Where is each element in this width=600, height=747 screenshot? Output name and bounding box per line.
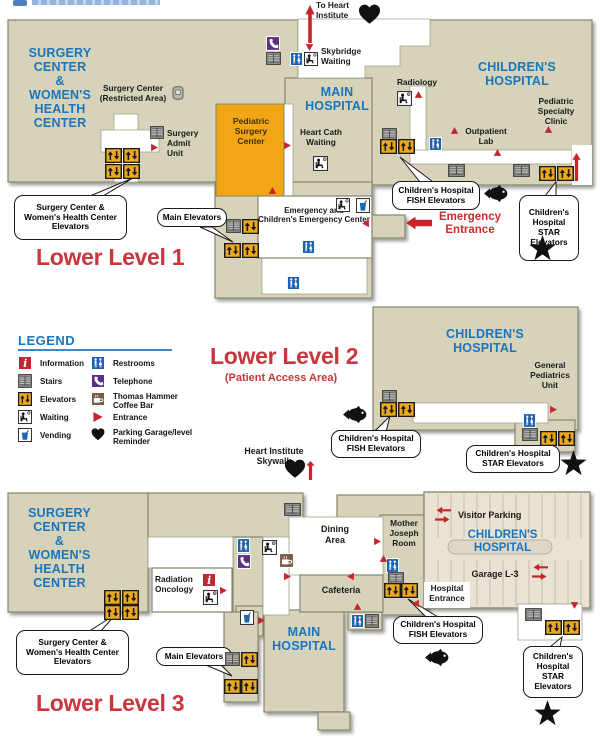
- entrance-icon: [373, 537, 382, 546]
- garage-l3-label: Garage L-3: [464, 569, 526, 580]
- elevator-icon: [380, 139, 397, 154]
- elevator-icon: [224, 243, 241, 258]
- waiting-icon: [18, 410, 32, 424]
- level2-title: Lower Level 2: [210, 343, 358, 370]
- level3-title: Lower Level 3: [36, 690, 184, 717]
- information-icon: i: [18, 356, 32, 370]
- entrance-icon: [411, 599, 420, 608]
- hospital-map-page: To Heart Institute SURGERY CENTER & WOME…: [0, 0, 600, 747]
- elevator-icon: [18, 392, 32, 406]
- heart-cath-waiting-label: Heart Cath Waiting: [289, 128, 353, 148]
- heart-icon: [91, 428, 105, 441]
- stairs-icon: [18, 374, 32, 388]
- elevator-icon: [105, 148, 122, 163]
- outpatient-lab-label: Outpatient Lab: [457, 127, 515, 147]
- stairs-icon: [226, 219, 241, 233]
- waiting-icon: [336, 198, 350, 212]
- restricted-area-icon: [172, 86, 184, 100]
- legend-rule: [18, 349, 172, 351]
- star-icon: [534, 700, 561, 726]
- information-icon: i: [202, 573, 216, 587]
- entrance-icon: [549, 405, 558, 414]
- entrance-icon: [450, 126, 459, 135]
- entrance-icon: [305, 43, 314, 52]
- heart-icon: [358, 4, 381, 25]
- waiting-icon: [397, 91, 412, 106]
- elevator-icon: [384, 583, 401, 598]
- left-arrow-icon: [406, 216, 432, 230]
- waiting-icon: [262, 540, 277, 555]
- heart-icon: [284, 459, 306, 479]
- restrooms-icon: [290, 52, 303, 66]
- elevator-icon: [540, 431, 557, 446]
- elevator-icon: [123, 148, 140, 163]
- elevator-icon: [242, 219, 259, 234]
- entrance-icon: [283, 141, 292, 150]
- entrance-icon: [379, 554, 388, 563]
- stairs-icon: [225, 652, 240, 666]
- elevator-icon: [545, 620, 562, 635]
- restrooms-icon: [523, 413, 536, 428]
- legend-item-label: Restrooms: [113, 359, 197, 368]
- elevator-icon: [398, 139, 415, 154]
- emergency-center-label: Emergency and Children's Emergency Cente…: [258, 206, 370, 225]
- svg-text:i: i: [207, 574, 211, 587]
- entrance-icon: [283, 572, 292, 581]
- vending-icon: [18, 428, 32, 442]
- vending-icon: [240, 610, 254, 625]
- stairs-icon: [150, 126, 164, 139]
- waiting-icon: [304, 52, 318, 66]
- coffee-icon: [91, 392, 105, 406]
- pediatric-surgery-label: Pediatric Surgery Center: [219, 116, 283, 146]
- legend-item-label: Stairs: [40, 377, 92, 386]
- childrens-hospital-title-l1: CHILDREN'S HOSPITAL: [452, 60, 582, 88]
- elevator-icon: [122, 605, 139, 620]
- elevator-icon: [224, 679, 241, 694]
- callout-star-elevators-l2: Children's Hospital STAR Elevators: [466, 445, 560, 473]
- surgery-admit-label: Surgery Admit Unit: [167, 129, 209, 158]
- entrance-icon: [544, 125, 553, 134]
- up-arrow-icon: [306, 461, 315, 480]
- legend-item-label: Thomas Hammer Coffee Bar: [113, 392, 197, 410]
- double-arrows-icon: [434, 506, 452, 525]
- radiology-label: Radiology: [393, 78, 441, 88]
- elevator-icon: [105, 164, 122, 179]
- entrance-icon: [346, 572, 355, 581]
- callout-star-elevators-l3: Children's Hospital STAR Elevators: [523, 646, 583, 698]
- cafeteria-label: Cafeteria: [305, 585, 377, 596]
- fish-icon: [341, 405, 368, 424]
- elevator-icon: [401, 583, 418, 598]
- main-hospital-title-l1: MAIN HOSPITAL: [297, 85, 377, 113]
- elevator-icon: [563, 620, 580, 635]
- elevator-icon: [104, 590, 121, 605]
- callout-fish-elevators-l3: Children's Hospital FISH Elevators: [393, 616, 483, 644]
- restrooms-icon: [91, 356, 105, 370]
- restrooms-icon: [302, 240, 315, 254]
- partial-logo-text: [32, 0, 160, 5]
- double-arrows-icon: [531, 563, 549, 582]
- telephone-icon: [91, 374, 105, 388]
- emergency-entrance-label: Emergency Entrance: [434, 211, 506, 236]
- restrooms-icon: [237, 538, 250, 553]
- svg-text:i: i: [23, 357, 27, 370]
- callout-fish-elevators-l1: Children's Hospital FISH Elevators: [392, 181, 480, 210]
- entrance-icon: [414, 90, 423, 99]
- visitor-parking-label: Visitor Parking: [458, 510, 530, 521]
- surgery-center-restricted-label: Surgery Center (Restricted Area): [93, 84, 173, 104]
- entrance-icon: [353, 602, 362, 611]
- entrance-icon: [570, 601, 579, 610]
- legend-item-label: Vending: [40, 431, 92, 440]
- elevator-icon: [123, 164, 140, 179]
- skybridge-waiting-label: Skybridge Waiting: [321, 47, 373, 67]
- elevator-icon: [241, 679, 258, 694]
- legend-item-label: Telephone: [113, 377, 197, 386]
- entrance-icon: [257, 616, 266, 625]
- legend-item-label: Information: [40, 359, 92, 368]
- elevator-icon: [104, 605, 121, 620]
- entrance-icon: [219, 586, 228, 595]
- elevator-icon: [242, 243, 259, 258]
- entrance-icon: [150, 143, 159, 152]
- legend-title: LEGEND: [18, 333, 75, 348]
- callout-main-elevators-l3: Main Elevators: [156, 647, 232, 666]
- level2-subtitle: (Patient Access Area): [216, 372, 346, 384]
- pediatric-specialty-label: Pediatric Specialty Clinic: [524, 97, 588, 126]
- star-icon: [529, 235, 556, 261]
- entrance-icon: [92, 411, 104, 423]
- main-hospital-title-l3: MAIN HOSPITAL: [266, 625, 342, 653]
- surgery-center-title-l3: SURGERY CENTER & WOMEN'S HEALTH CENTER: [12, 506, 107, 590]
- elevator-icon: [539, 166, 556, 181]
- elevator-icon: [241, 652, 258, 667]
- legend-item-label: Elevators: [40, 395, 92, 404]
- restrooms-icon: [351, 614, 364, 628]
- restrooms-icon: [287, 276, 300, 290]
- fish-icon: [482, 184, 509, 203]
- hospital-entrance-label: Hospital Entrance: [422, 584, 472, 604]
- vending-icon: [356, 198, 370, 213]
- entrance-icon: [493, 148, 502, 157]
- stairs-icon: [522, 428, 538, 441]
- elevator-icon: [380, 402, 397, 417]
- telephone-icon: [266, 36, 280, 51]
- waiting-icon: [203, 590, 218, 605]
- up-arrow-icon: [572, 153, 581, 181]
- stairs-icon: [513, 164, 530, 177]
- stairs-icon: [266, 52, 281, 65]
- stairs-icon: [448, 164, 465, 177]
- general-pediatrics-label: General Pediatrics Unit: [520, 361, 580, 390]
- stairs-icon: [525, 608, 542, 621]
- entrance-icon: [268, 186, 277, 195]
- coffee-icon: [279, 553, 294, 568]
- legend-item-label: Entrance: [113, 413, 197, 422]
- legend-item-label: Parking Garage/level Reminder: [113, 428, 197, 446]
- partial-logo-mark: [13, 0, 27, 6]
- star-icon: [560, 450, 587, 476]
- to-heart-institute-label: To Heart Institute: [316, 1, 362, 21]
- restrooms-icon: [429, 137, 442, 151]
- elevator-icon: [122, 590, 139, 605]
- callout-main-elevators-l1: Main Elevators: [157, 208, 227, 227]
- mother-joseph-room-label: Mother Joseph Room: [381, 519, 427, 548]
- telephone-icon: [237, 554, 251, 569]
- fish-icon: [423, 648, 450, 667]
- elevator-icon: [398, 402, 415, 417]
- radiation-oncology-label: Radiation Oncology: [155, 575, 209, 595]
- up-arrow-icon: [305, 5, 315, 43]
- stairs-icon: [284, 503, 301, 516]
- callout-swhc-elevators-l3: Surgery Center & Women's Health Center E…: [16, 630, 129, 675]
- stairs-icon: [365, 614, 379, 628]
- dining-area-label: Dining Area: [302, 524, 368, 545]
- entrance-icon: [361, 219, 370, 228]
- level1-title: Lower Level 1: [36, 244, 184, 271]
- elevator-icon: [558, 431, 575, 446]
- legend-item-label: Waiting: [40, 413, 92, 422]
- callout-swhc-elevators-l1: Surgery Center & Women's Health Center E…: [14, 195, 127, 240]
- childrens-hospital-title-l3: CHILDREN'S HOSPITAL: [450, 529, 555, 554]
- callout-fish-elevators-l2: Children's Hospital FISH Elevators: [331, 430, 421, 458]
- waiting-icon: [313, 156, 328, 171]
- childrens-hospital-title-l2: CHILDREN'S HOSPITAL: [425, 327, 545, 355]
